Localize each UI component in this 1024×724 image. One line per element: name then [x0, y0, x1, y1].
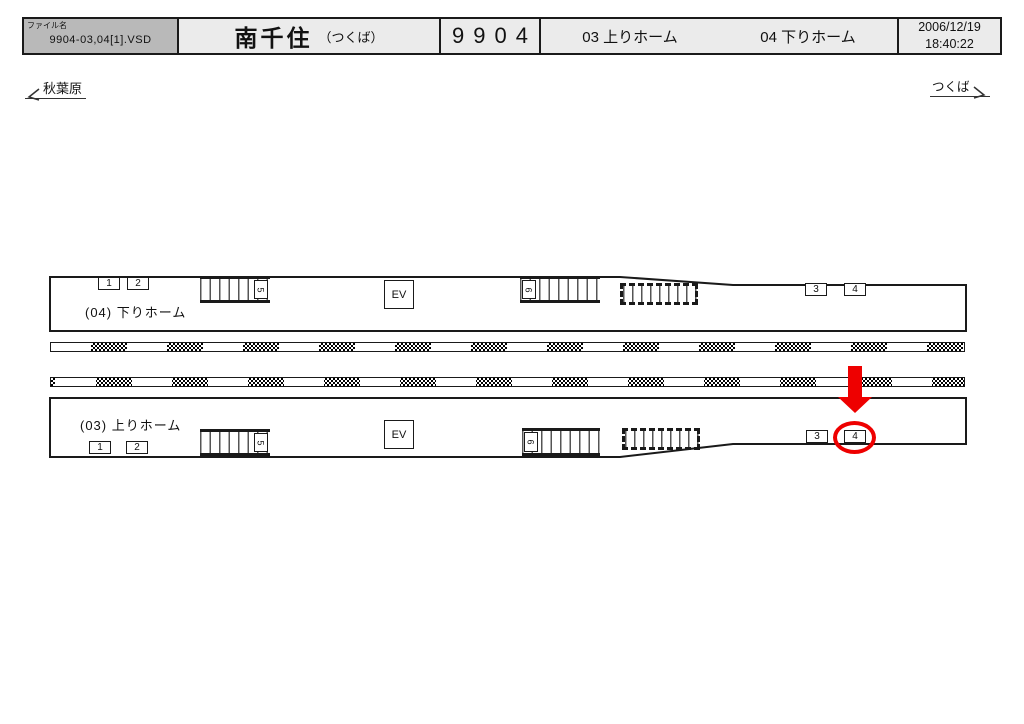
up-position-1: 1	[89, 441, 111, 454]
platform-03-title: 03 上りホーム	[582, 26, 677, 47]
direction-left-label: 秋葉原	[43, 78, 82, 97]
down-stairs-5-number: 5	[254, 280, 268, 299]
platform-up-outline	[49, 396, 968, 460]
date-value: 2006/12/19	[918, 19, 981, 36]
down-elevator: EV	[384, 280, 414, 309]
direction-right-label: つくば	[932, 76, 970, 95]
down-stairs-5: 5	[200, 276, 270, 303]
datetime-cell: 2006/12/19 18:40:22	[897, 19, 1000, 53]
title-block: ファイル名 9904-03,04[1].VSD 南千住 （つくば） 9904 0…	[22, 17, 1002, 55]
up-stairs-5: 5	[200, 429, 270, 456]
up-stairs-6-number: 6	[524, 432, 538, 452]
platform-names-cell: 03 上りホーム 04 下りホーム	[539, 19, 897, 53]
station-name: 南千住	[234, 19, 312, 53]
platform-down-outline	[49, 275, 968, 333]
station-diagram-page: ファイル名 9904-03,04[1].VSD 南千住 （つくば） 9904 0…	[0, 0, 1024, 724]
highlight-arrow-head-icon	[838, 397, 872, 413]
station-line-note: （つくば）	[318, 27, 383, 46]
down-position-4: 4	[844, 283, 866, 296]
up-escalator	[622, 428, 700, 450]
down-stairs-6-number: 6	[522, 280, 536, 299]
station-number: 9904	[439, 19, 539, 53]
down-escalator	[620, 283, 698, 305]
down-stairs-6: 6	[520, 276, 600, 303]
platform-up-label: (03) 上りホーム	[80, 415, 181, 434]
highlight-circle	[833, 421, 876, 454]
direction-right: つくば	[930, 76, 990, 97]
platform-04-title: 04 下りホーム	[760, 26, 855, 47]
up-stairs-6: 6	[522, 428, 600, 456]
up-position-3: 3	[806, 430, 828, 443]
highlight-arrow-shaft	[848, 366, 862, 398]
station-name-cell: 南千住 （つくば）	[177, 19, 439, 53]
file-name-value: 9904-03,04[1].VSD	[24, 34, 177, 46]
track-up	[50, 377, 965, 387]
up-position-2: 2	[126, 441, 148, 454]
arrow-left-icon	[27, 88, 41, 101]
down-position-3: 3	[805, 283, 827, 296]
direction-left: 秋葉原	[25, 78, 86, 99]
platform-down-label: (04) 下りホーム	[85, 302, 186, 321]
up-elevator: EV	[384, 420, 414, 449]
track-down	[50, 342, 965, 352]
down-position-1: 1	[98, 277, 120, 290]
file-name-label: ファイル名	[27, 20, 67, 31]
up-stairs-5-number: 5	[254, 433, 268, 452]
file-name-cell: ファイル名 9904-03,04[1].VSD	[24, 19, 177, 53]
arrow-right-icon	[972, 86, 986, 99]
down-position-2: 2	[127, 277, 149, 290]
time-value: 18:40:22	[925, 36, 974, 53]
